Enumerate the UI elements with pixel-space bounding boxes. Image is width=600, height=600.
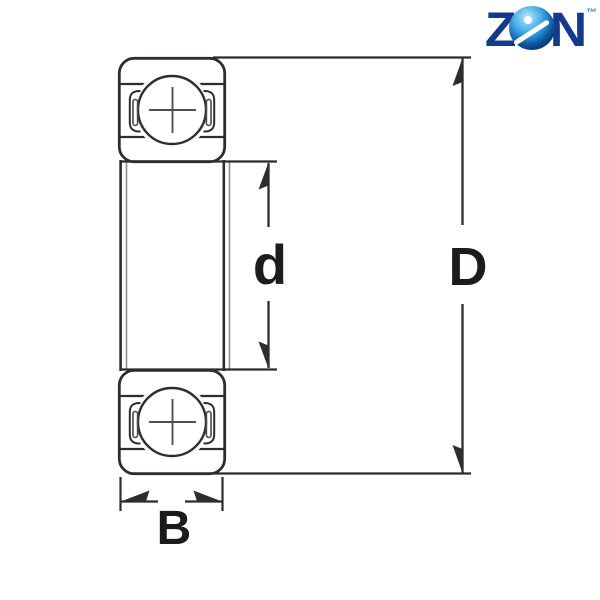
arrow-D-top <box>453 58 463 86</box>
bore-silhouette-lines <box>121 160 230 371</box>
dim-label-outer-D: D <box>446 240 490 294</box>
ball-highlight-dot-icon <box>524 16 532 24</box>
ball-swoosh-icon <box>513 19 550 46</box>
dim-label-bore-d: d <box>248 237 292 293</box>
arrow-D-bottom <box>453 445 463 473</box>
arrow-B-right <box>194 491 223 502</box>
zen-logo-letter-n: N <box>550 9 585 53</box>
dim-label-width-B: B <box>152 505 196 553</box>
arrow-B-left <box>121 491 150 502</box>
zen-ball-icon <box>509 6 555 50</box>
arrow-d-top <box>259 163 269 190</box>
arrow-d-bottom <box>259 342 269 369</box>
zen-logo: Z N ™ <box>486 6 597 53</box>
bearing-section-top <box>119 58 277 161</box>
bearing-datasheet-diagram: d D B Z N ™ <box>0 0 600 600</box>
bearing-cross-section-svg <box>0 0 600 600</box>
trademark-symbol: ™ <box>586 8 597 19</box>
bearing-section-bottom <box>119 370 277 474</box>
